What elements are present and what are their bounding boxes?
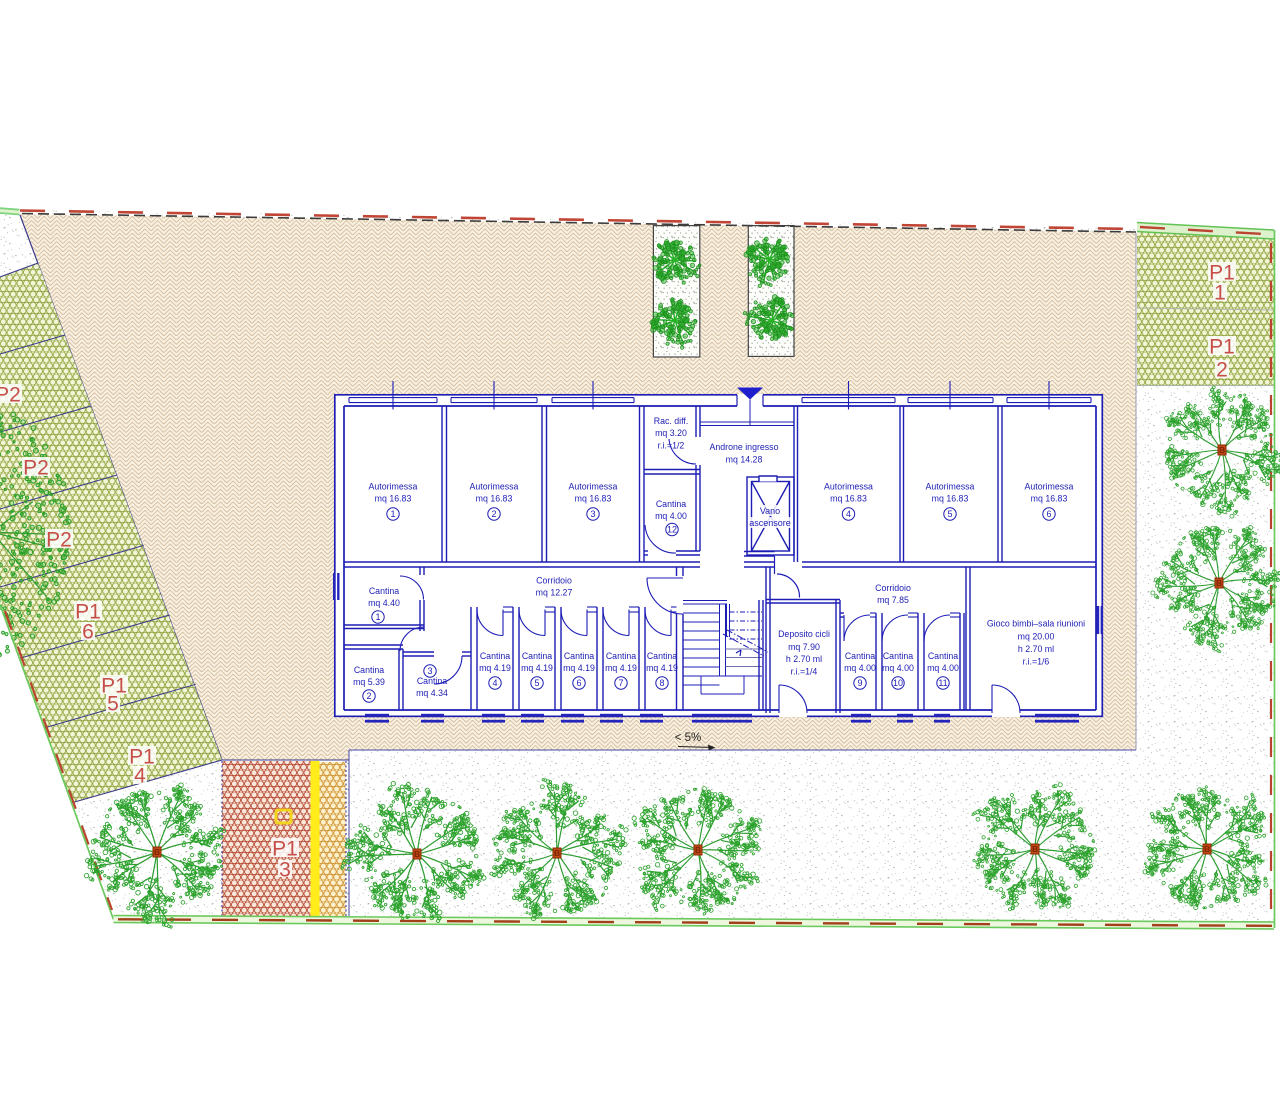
svg-text:mq 4.40: mq 4.40 (368, 598, 400, 608)
svg-text:Gioco bimbi–sala riunioni: Gioco bimbi–sala riunioni (987, 619, 1085, 629)
svg-text:mq 7.85: mq 7.85 (877, 595, 909, 605)
svg-text:mq 3.20: mq 3.20 (655, 428, 687, 438)
svg-text:mq 4.19: mq 4.19 (563, 663, 595, 673)
svg-text:2: 2 (1216, 359, 1228, 382)
svg-text:Corridoio: Corridoio (875, 583, 911, 593)
svg-text:9: 9 (857, 678, 862, 688)
svg-text:Androne ingresso: Androne ingresso (710, 442, 779, 452)
svg-text:Cantina: Cantina (845, 651, 875, 661)
svg-text:Autorimessa: Autorimessa (569, 482, 618, 492)
svg-text:8: 8 (659, 678, 664, 688)
svg-text:P2: P2 (46, 529, 72, 552)
svg-text:1: 1 (1214, 282, 1226, 305)
svg-text:Autorimessa: Autorimessa (926, 482, 975, 492)
svg-text:ascensore: ascensore (749, 518, 791, 528)
svg-text:1: 1 (375, 612, 380, 622)
svg-text:Cantina: Cantina (647, 651, 677, 661)
svg-text:mq 4.00: mq 4.00 (882, 663, 914, 673)
svg-text:mq 4.19: mq 4.19 (521, 663, 553, 673)
svg-text:Corridoio: Corridoio (536, 576, 572, 586)
svg-text:mq 12.27: mq 12.27 (536, 588, 573, 598)
svg-text:mq 4.19: mq 4.19 (646, 663, 678, 673)
svg-text:7: 7 (618, 678, 623, 688)
svg-text:mq 4.19: mq 4.19 (605, 663, 637, 673)
svg-text:mq 14.28: mq 14.28 (726, 455, 763, 465)
svg-text:mq 4.00: mq 4.00 (844, 663, 876, 673)
svg-text:mq 16.83: mq 16.83 (375, 494, 412, 504)
svg-text:5: 5 (947, 509, 952, 519)
svg-text:5: 5 (534, 678, 539, 688)
svg-text:mq 16.83: mq 16.83 (830, 494, 867, 504)
svg-text:6: 6 (576, 678, 581, 688)
svg-text:mq 4.34: mq 4.34 (416, 688, 448, 698)
svg-text:Deposito cicli: Deposito cicli (778, 629, 830, 639)
svg-text:< 5%: < 5% (675, 732, 702, 744)
svg-text:Cantina: Cantina (928, 651, 958, 661)
svg-text:Cantina: Cantina (606, 651, 636, 661)
svg-text:mq 4.00: mq 4.00 (927, 663, 959, 673)
svg-text:4: 4 (134, 765, 146, 788)
svg-text:4: 4 (492, 678, 497, 688)
svg-text:Cantina: Cantina (564, 651, 594, 661)
svg-text:mq 16.83: mq 16.83 (476, 494, 513, 504)
svg-text:Rac. diff.: Rac. diff. (654, 416, 689, 426)
svg-text:2: 2 (491, 509, 496, 519)
svg-text:mq 20.00: mq 20.00 (1018, 632, 1055, 642)
svg-text:P1: P1 (1209, 336, 1235, 359)
svg-text:3: 3 (427, 666, 432, 676)
svg-text:5: 5 (107, 693, 119, 716)
svg-text:Cantina: Cantina (656, 499, 686, 509)
svg-text:r.i.=1/4: r.i.=1/4 (791, 667, 818, 677)
svg-text:Cantina: Cantina (480, 651, 510, 661)
svg-text:Autorimessa: Autorimessa (470, 482, 519, 492)
svg-text:3: 3 (590, 509, 595, 519)
svg-text:Cantina: Cantina (883, 651, 913, 661)
svg-text:Autorimessa: Autorimessa (1025, 482, 1074, 492)
svg-text:6: 6 (1046, 509, 1051, 519)
svg-text:2: 2 (366, 691, 371, 701)
svg-text:Cantina: Cantina (417, 676, 447, 686)
svg-text:12: 12 (667, 525, 677, 535)
svg-text:h 2.70 ml: h 2.70 ml (1018, 644, 1054, 654)
svg-text:Autorimessa: Autorimessa (369, 482, 418, 492)
svg-text:Autorimessa: Autorimessa (824, 482, 873, 492)
svg-text:Cantina: Cantina (354, 665, 384, 675)
svg-text:mq 4.19: mq 4.19 (479, 663, 511, 673)
svg-text:4: 4 (846, 509, 851, 519)
svg-text:r.i.=1/2: r.i.=1/2 (658, 441, 685, 451)
svg-text:mq 16.83: mq 16.83 (1031, 494, 1068, 504)
svg-text:11: 11 (938, 678, 947, 688)
svg-text:6: 6 (82, 621, 94, 644)
svg-text:P2: P2 (23, 457, 49, 480)
svg-text:3: 3 (279, 859, 291, 882)
svg-text:10: 10 (893, 678, 903, 688)
svg-text:1: 1 (390, 509, 395, 519)
svg-text:mq 7.90: mq 7.90 (788, 642, 820, 652)
svg-text:r.i.=1/6: r.i.=1/6 (1023, 657, 1050, 667)
svg-text:Cantina: Cantina (369, 586, 399, 596)
svg-text:Vano: Vano (760, 506, 780, 516)
svg-text:mq 16.83: mq 16.83 (932, 494, 969, 504)
svg-text:h 2.70 ml: h 2.70 ml (786, 654, 822, 664)
svg-text:mq 5.39: mq 5.39 (353, 677, 385, 687)
svg-text:Cantina: Cantina (522, 651, 552, 661)
svg-text:P2: P2 (0, 384, 21, 407)
svg-text:mq 16.83: mq 16.83 (575, 494, 612, 504)
svg-text:mq 4.00: mq 4.00 (655, 511, 687, 521)
svg-text:P1: P1 (272, 838, 298, 861)
